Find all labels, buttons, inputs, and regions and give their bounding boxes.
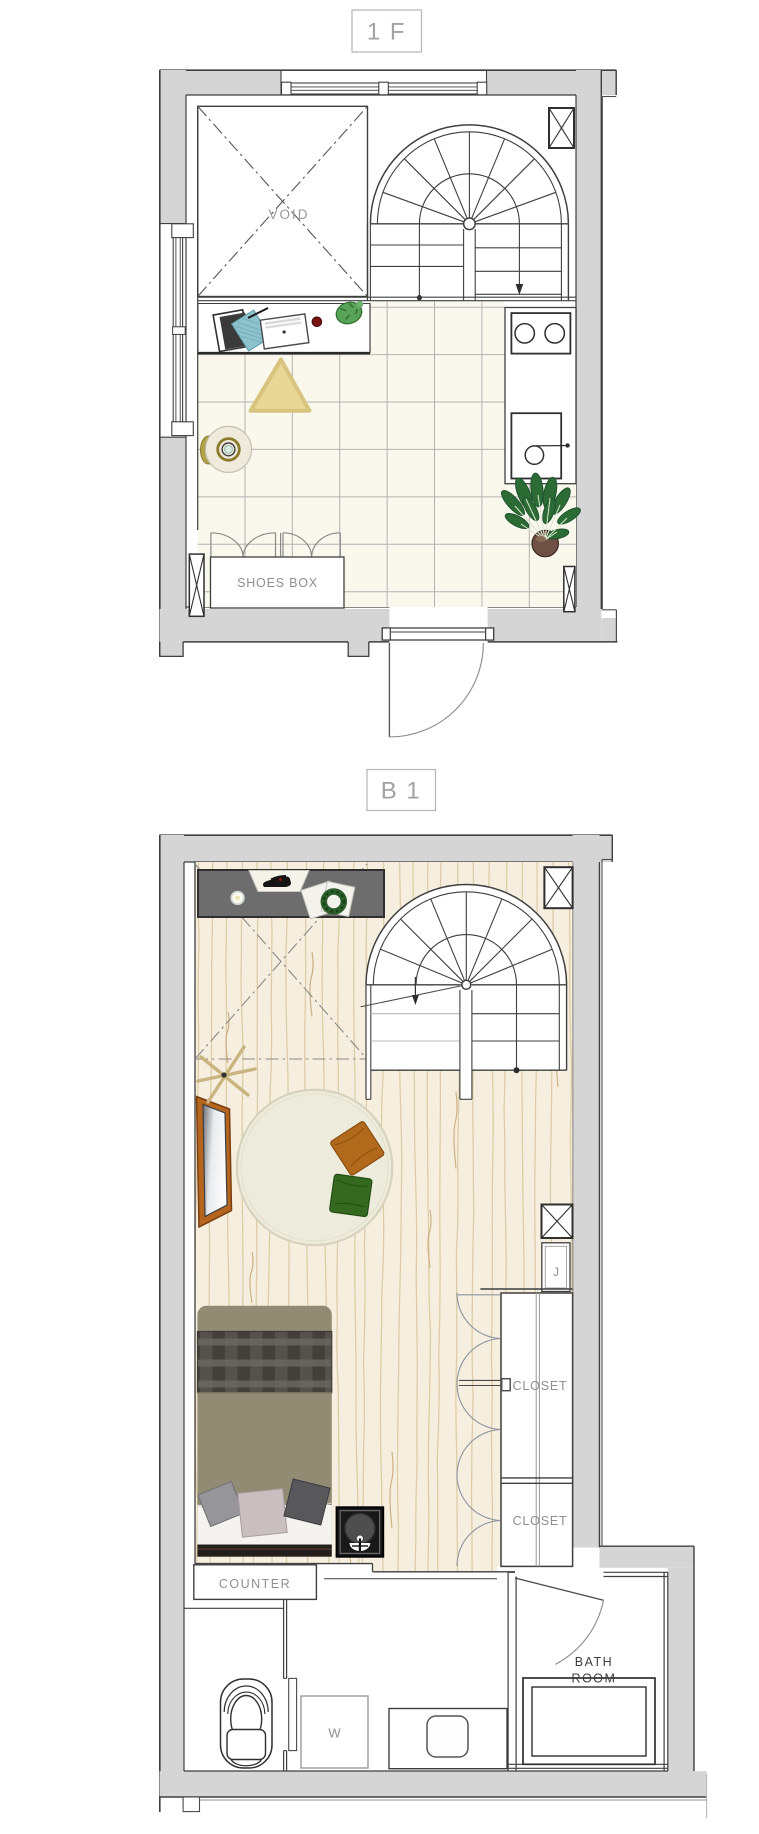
svg-text:CLOSET: CLOSET [513,1514,568,1528]
svg-text:W: W [328,1726,341,1741]
svg-text:VOID: VOID [268,207,309,222]
svg-text:J: J [553,1265,559,1279]
svg-text:CLOSET: CLOSET [513,1379,568,1393]
svg-text:ROOM: ROOM [572,1672,617,1686]
svg-text:SHOES BOX: SHOES BOX [237,576,318,590]
svg-text:COUNTER: COUNTER [219,1577,291,1591]
svg-text:BATH: BATH [575,1655,613,1669]
svg-text:1 F: 1 F [367,19,406,46]
svg-text:B 1: B 1 [381,778,422,805]
